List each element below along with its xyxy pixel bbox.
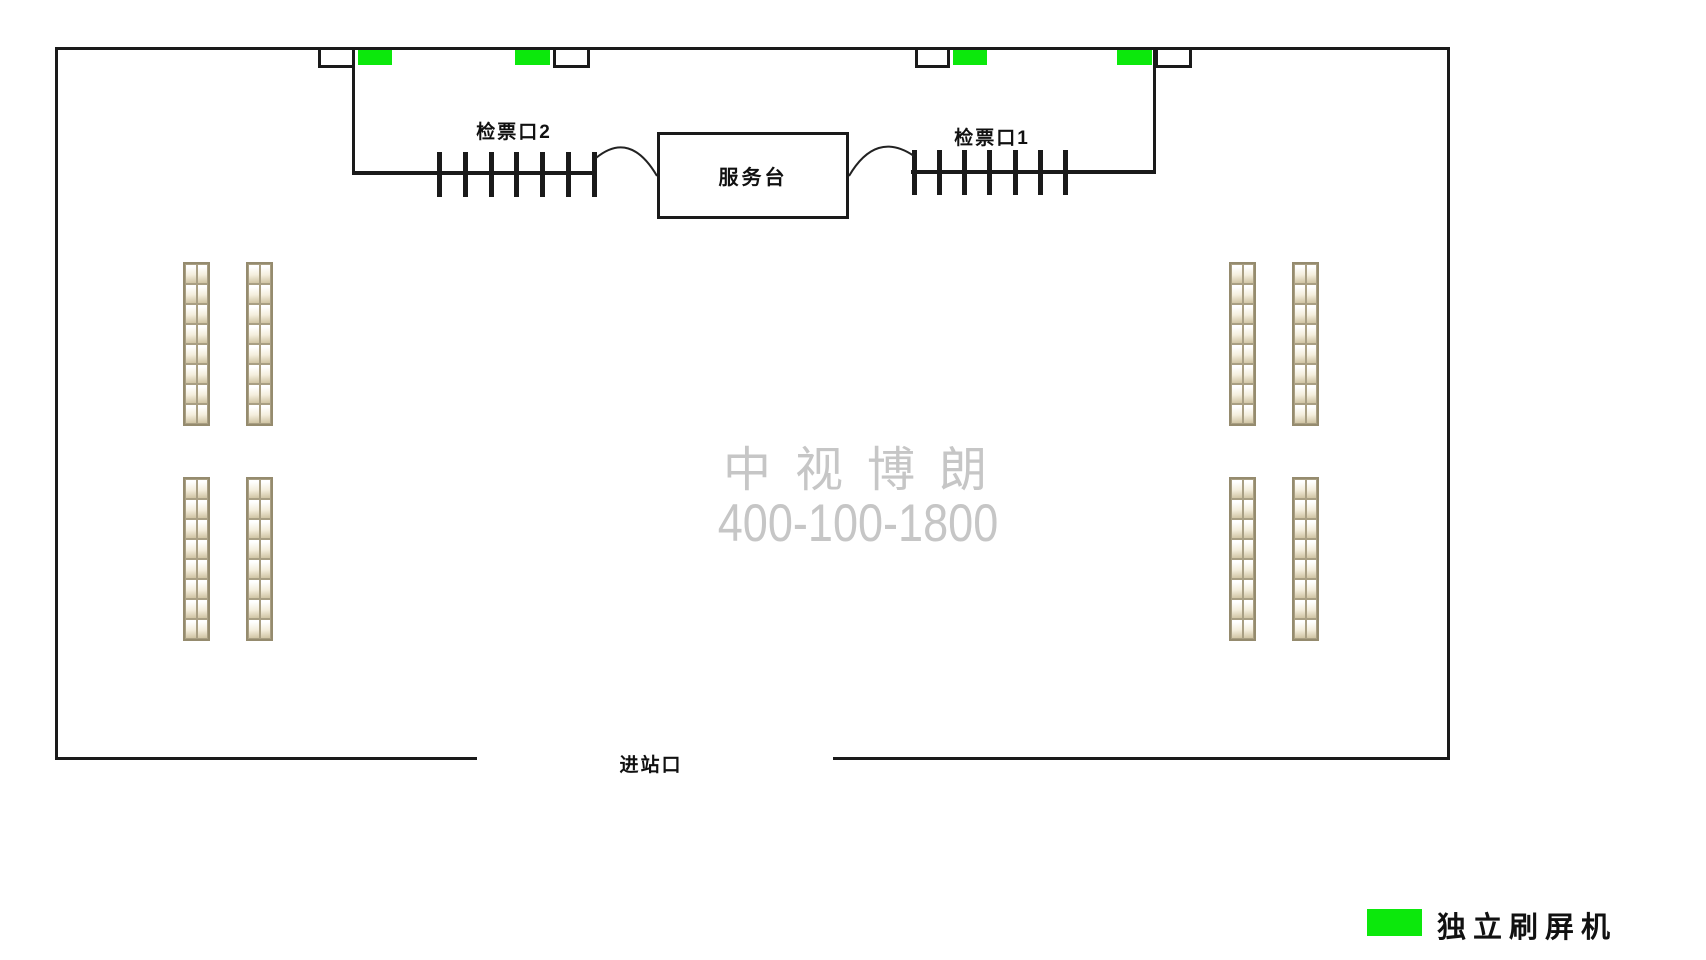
seat-cell	[1231, 344, 1243, 364]
gate-door	[318, 47, 355, 68]
legend-label: 独立刷屏机	[1437, 904, 1617, 946]
turnstile-tick	[1013, 150, 1018, 195]
seat-cell	[1243, 579, 1255, 599]
seat-cell	[197, 539, 209, 559]
seat-cell	[197, 344, 209, 364]
seat-cell	[248, 364, 260, 384]
seat-column	[183, 477, 210, 641]
turnstile-tick	[1063, 150, 1068, 195]
seat-cell	[1306, 344, 1318, 364]
seat-cell	[1243, 599, 1255, 619]
seat-cell	[248, 559, 260, 579]
seat-cell	[260, 519, 272, 539]
seat-cell	[1306, 479, 1318, 499]
seat-cell	[197, 324, 209, 344]
seat-cell	[185, 284, 197, 304]
seat-cell	[1243, 304, 1255, 324]
seat-cell	[1306, 284, 1318, 304]
seat-cell	[1294, 264, 1306, 284]
service-desk: 服务台	[657, 132, 849, 219]
screen-machine	[358, 50, 392, 65]
seat-cell	[260, 539, 272, 559]
seat-cell	[260, 559, 272, 579]
seat-cell	[1294, 324, 1306, 344]
seat-cell	[1243, 519, 1255, 539]
seat-column	[183, 262, 210, 426]
seat-cell	[248, 479, 260, 499]
seat-cell	[260, 384, 272, 404]
seat-cell	[248, 284, 260, 304]
seat-cell	[197, 619, 209, 639]
seat-group-top-left	[183, 262, 273, 426]
seat-cell	[1243, 264, 1255, 284]
seat-cell	[1231, 384, 1243, 404]
seat-cell	[185, 579, 197, 599]
seat-cell	[260, 599, 272, 619]
seat-cell	[1294, 479, 1306, 499]
seat-cell	[1243, 479, 1255, 499]
seat-cell	[248, 579, 260, 599]
gate-door	[915, 47, 950, 68]
seat-cell	[1243, 344, 1255, 364]
seat-cell	[1306, 324, 1318, 344]
seat-cell	[1243, 559, 1255, 579]
gate1-turnstiles	[912, 150, 1068, 195]
seat-cell	[185, 599, 197, 619]
legend-swatch-screen-machine	[1367, 909, 1422, 936]
seat-cell	[248, 619, 260, 639]
seat-cell	[260, 479, 272, 499]
seat-cell	[1231, 619, 1243, 639]
seat-cell	[1231, 264, 1243, 284]
gate-door	[1155, 47, 1192, 68]
seat-cell	[1306, 304, 1318, 324]
seat-cell	[1294, 344, 1306, 364]
turnstile-tick	[437, 152, 442, 197]
seat-cell	[1294, 304, 1306, 324]
seat-cell	[1306, 559, 1318, 579]
seat-column	[1229, 477, 1256, 641]
seat-cell	[1243, 499, 1255, 519]
seat-cell	[1231, 599, 1243, 619]
seat-cell	[1231, 519, 1243, 539]
seat-cell	[1243, 539, 1255, 559]
turnstile-tick	[514, 152, 519, 197]
seat-cell	[185, 619, 197, 639]
seat-cell	[185, 304, 197, 324]
service-desk-label: 服务台	[719, 161, 788, 190]
seat-cell	[260, 619, 272, 639]
seat-cell	[1294, 384, 1306, 404]
seat-cell	[260, 304, 272, 324]
seat-cell	[248, 264, 260, 284]
hall-bottom-wall-left-segment	[55, 757, 477, 760]
seat-cell	[1231, 479, 1243, 499]
seat-cell	[260, 284, 272, 304]
seat-cell	[248, 599, 260, 619]
seat-cell	[1243, 324, 1255, 344]
seat-cell	[1231, 579, 1243, 599]
seat-cell	[197, 559, 209, 579]
watermark-phone: 400-100-1800	[603, 493, 1113, 554]
seat-cell	[1231, 284, 1243, 304]
seat-cell	[197, 264, 209, 284]
seat-cell	[1306, 264, 1318, 284]
gate-door	[553, 47, 590, 68]
seat-cell	[185, 364, 197, 384]
seat-cell	[1306, 404, 1318, 424]
seat-cell	[248, 384, 260, 404]
seat-column	[1229, 262, 1256, 426]
seat-cell	[1306, 619, 1318, 639]
turnstile-tick	[540, 152, 545, 197]
gate2-label: 检票口2	[434, 117, 594, 144]
seat-cell	[248, 519, 260, 539]
hall-bottom-wall-right-segment	[833, 757, 1450, 760]
seat-cell	[185, 324, 197, 344]
seat-cell	[197, 599, 209, 619]
entrance-label: 进站口	[571, 750, 731, 777]
seat-cell	[197, 384, 209, 404]
seat-cell	[1294, 619, 1306, 639]
seat-group-top-right	[1229, 262, 1319, 426]
seat-column	[246, 477, 273, 641]
seat-column	[246, 262, 273, 426]
watermark-brand: 中视博朗	[567, 430, 1167, 500]
seat-cell	[185, 559, 197, 579]
seat-cell	[1231, 404, 1243, 424]
seat-cell	[260, 364, 272, 384]
turnstile-tick	[962, 150, 967, 195]
seat-cell	[197, 579, 209, 599]
turnstile-tick	[912, 150, 917, 195]
seat-cell	[1231, 324, 1243, 344]
seat-cell	[248, 404, 260, 424]
seat-cell	[185, 264, 197, 284]
seat-cell	[197, 479, 209, 499]
seat-cell	[197, 404, 209, 424]
seat-cell	[1294, 579, 1306, 599]
seat-cell	[260, 404, 272, 424]
seat-group-bottom-left	[183, 477, 273, 641]
seat-cell	[1231, 304, 1243, 324]
seat-cell	[197, 304, 209, 324]
seat-cell	[248, 344, 260, 364]
seat-cell	[260, 324, 272, 344]
seat-cell	[248, 324, 260, 344]
seat-cell	[197, 499, 209, 519]
turnstile-tick	[987, 150, 992, 195]
gate1-label: 检票口1	[912, 123, 1072, 150]
floor-plan: 服务台 检票口2 检票口1 进站口 中视博朗 400-100-1800 独立刷屏…	[0, 0, 1706, 960]
seat-cell	[185, 539, 197, 559]
seat-cell	[1294, 364, 1306, 384]
seat-column	[1292, 262, 1319, 426]
seat-cell	[1243, 404, 1255, 424]
seat-cell	[1294, 284, 1306, 304]
seat-cell	[1243, 284, 1255, 304]
turnstile-tick	[1038, 150, 1043, 195]
seat-cell	[248, 499, 260, 519]
seat-cell	[1231, 499, 1243, 519]
gate2-side-wall	[352, 50, 355, 175]
seat-cell	[1294, 539, 1306, 559]
screen-machine	[1117, 50, 1152, 65]
turnstile-tick	[463, 152, 468, 197]
seat-cell	[1294, 599, 1306, 619]
seat-cell	[1243, 384, 1255, 404]
seat-group-bottom-right	[1229, 477, 1319, 641]
seat-cell	[185, 519, 197, 539]
seat-cell	[197, 519, 209, 539]
seat-cell	[260, 579, 272, 599]
seat-cell	[248, 539, 260, 559]
seat-cell	[1306, 579, 1318, 599]
seat-cell	[185, 404, 197, 424]
seat-cell	[248, 304, 260, 324]
seat-cell	[1231, 539, 1243, 559]
seat-cell	[185, 344, 197, 364]
seat-cell	[1306, 364, 1318, 384]
turnstile-tick	[592, 152, 597, 197]
seat-cell	[260, 499, 272, 519]
seat-cell	[1306, 384, 1318, 404]
seat-cell	[1294, 404, 1306, 424]
seat-cell	[185, 479, 197, 499]
seat-cell	[197, 284, 209, 304]
seat-cell	[185, 499, 197, 519]
seat-cell	[1294, 499, 1306, 519]
seat-cell	[185, 384, 197, 404]
seat-cell	[1306, 519, 1318, 539]
seat-cell	[1306, 539, 1318, 559]
gate1-side-wall	[1153, 50, 1156, 172]
seat-cell	[1294, 519, 1306, 539]
screen-machine	[953, 50, 987, 65]
seat-cell	[197, 364, 209, 384]
seat-cell	[1231, 364, 1243, 384]
turnstile-tick	[489, 152, 494, 197]
gate2-turnstiles	[437, 152, 597, 197]
seat-cell	[1306, 499, 1318, 519]
seat-cell	[260, 264, 272, 284]
seat-cell	[1294, 559, 1306, 579]
seat-cell	[1243, 364, 1255, 384]
seat-cell	[1306, 599, 1318, 619]
seat-cell	[260, 344, 272, 364]
seat-cell	[1243, 619, 1255, 639]
seat-column	[1292, 477, 1319, 641]
turnstile-tick	[566, 152, 571, 197]
seat-cell	[1231, 559, 1243, 579]
turnstile-tick	[937, 150, 942, 195]
screen-machine	[515, 50, 550, 65]
